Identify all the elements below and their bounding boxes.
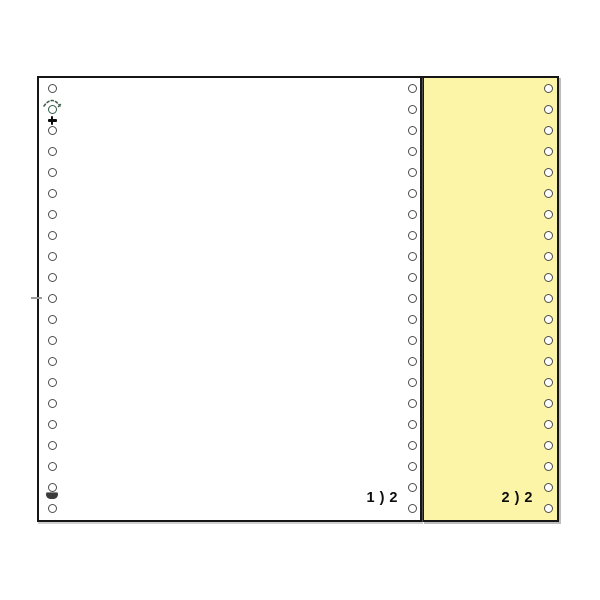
tractor-feed-hole <box>408 504 417 513</box>
white-page-label: 1 ) 2 <box>366 490 398 506</box>
tractor-feed-hole <box>48 399 57 408</box>
tractor-feed-hole <box>48 294 57 303</box>
tractor-feed-hole <box>544 84 553 93</box>
tractor-feed-hole <box>544 210 553 219</box>
product-image: 1 ) 2 2 ) 2 <box>0 0 600 600</box>
white-right-holes <box>408 84 417 513</box>
tractor-feed-hole <box>408 210 417 219</box>
tractor-feed-hole <box>48 483 57 492</box>
tractor-feed-hole <box>408 252 417 261</box>
tractor-feed-hole <box>48 126 57 135</box>
tractor-feed-hole <box>48 231 57 240</box>
tractor-feed-hole <box>48 168 57 177</box>
tractor-feed-hole <box>48 252 57 261</box>
tractor-feed-hole <box>408 462 417 471</box>
tractor-feed-hole <box>544 399 553 408</box>
tractor-feed-hole <box>48 315 57 324</box>
tractor-feed-hole <box>408 84 417 93</box>
tractor-feed-hole <box>408 168 417 177</box>
tractor-feed-hole <box>408 147 417 156</box>
tractor-feed-hole <box>544 483 553 492</box>
tractor-feed-hole <box>544 378 553 387</box>
tractor-feed-hole <box>544 126 553 135</box>
tractor-feed-hole <box>544 252 553 261</box>
tractor-feed-hole <box>408 189 417 198</box>
tractor-feed-hole <box>408 273 417 282</box>
tractor-feed-hole <box>408 441 417 450</box>
yellow-right-holes <box>544 84 553 513</box>
tractor-feed-hole <box>544 504 553 513</box>
tractor-feed-hole <box>408 357 417 366</box>
tractor-feed-hole <box>408 399 417 408</box>
tractor-feed-hole <box>48 378 57 387</box>
tractor-feed-hole <box>408 420 417 429</box>
tractor-feed-hole <box>544 357 553 366</box>
tractor-feed-hole <box>408 483 417 492</box>
tractor-feed-hole <box>48 210 57 219</box>
tractor-feed-hole <box>544 189 553 198</box>
tractor-feed-hole <box>544 420 553 429</box>
tractor-feed-hole <box>544 231 553 240</box>
yellow-sheet: 2 ) 2 <box>422 76 559 522</box>
sparkle-mark <box>42 95 62 108</box>
tractor-feed-hole <box>408 315 417 324</box>
tractor-feed-hole <box>544 462 553 471</box>
plus-registration-mark <box>48 116 57 125</box>
tractor-feed-hole <box>48 189 57 198</box>
tractor-feed-hole <box>408 378 417 387</box>
tractor-feed-hole <box>48 504 57 513</box>
yellow-page-label: 2 ) 2 <box>501 490 533 506</box>
tractor-feed-hole <box>408 105 417 114</box>
tractor-feed-hole <box>48 273 57 282</box>
tractor-feed-hole <box>544 336 553 345</box>
tractor-feed-hole <box>48 147 57 156</box>
tractor-feed-hole <box>48 336 57 345</box>
tractor-feed-hole <box>544 294 553 303</box>
tractor-feed-hole <box>48 84 57 93</box>
tractor-feed-hole <box>48 441 57 450</box>
tractor-feed-hole <box>408 336 417 345</box>
tractor-feed-hole <box>408 126 417 135</box>
tractor-feed-hole <box>544 441 553 450</box>
tractor-feed-hole <box>544 105 553 114</box>
tractor-feed-hole <box>544 315 553 324</box>
tractor-feed-hole <box>408 294 417 303</box>
tractor-feed-hole <box>544 168 553 177</box>
tractor-feed-hole <box>48 462 57 471</box>
white-left-holes <box>48 84 57 513</box>
tractor-feed-hole <box>48 357 57 366</box>
smudge-mark <box>46 493 58 499</box>
tractor-feed-hole <box>544 273 553 282</box>
edge-tick-mark <box>31 297 42 299</box>
tractor-feed-hole <box>408 231 417 240</box>
white-sheet: 1 ) 2 <box>37 76 422 522</box>
tractor-feed-hole <box>544 147 553 156</box>
tractor-feed-hole <box>48 420 57 429</box>
